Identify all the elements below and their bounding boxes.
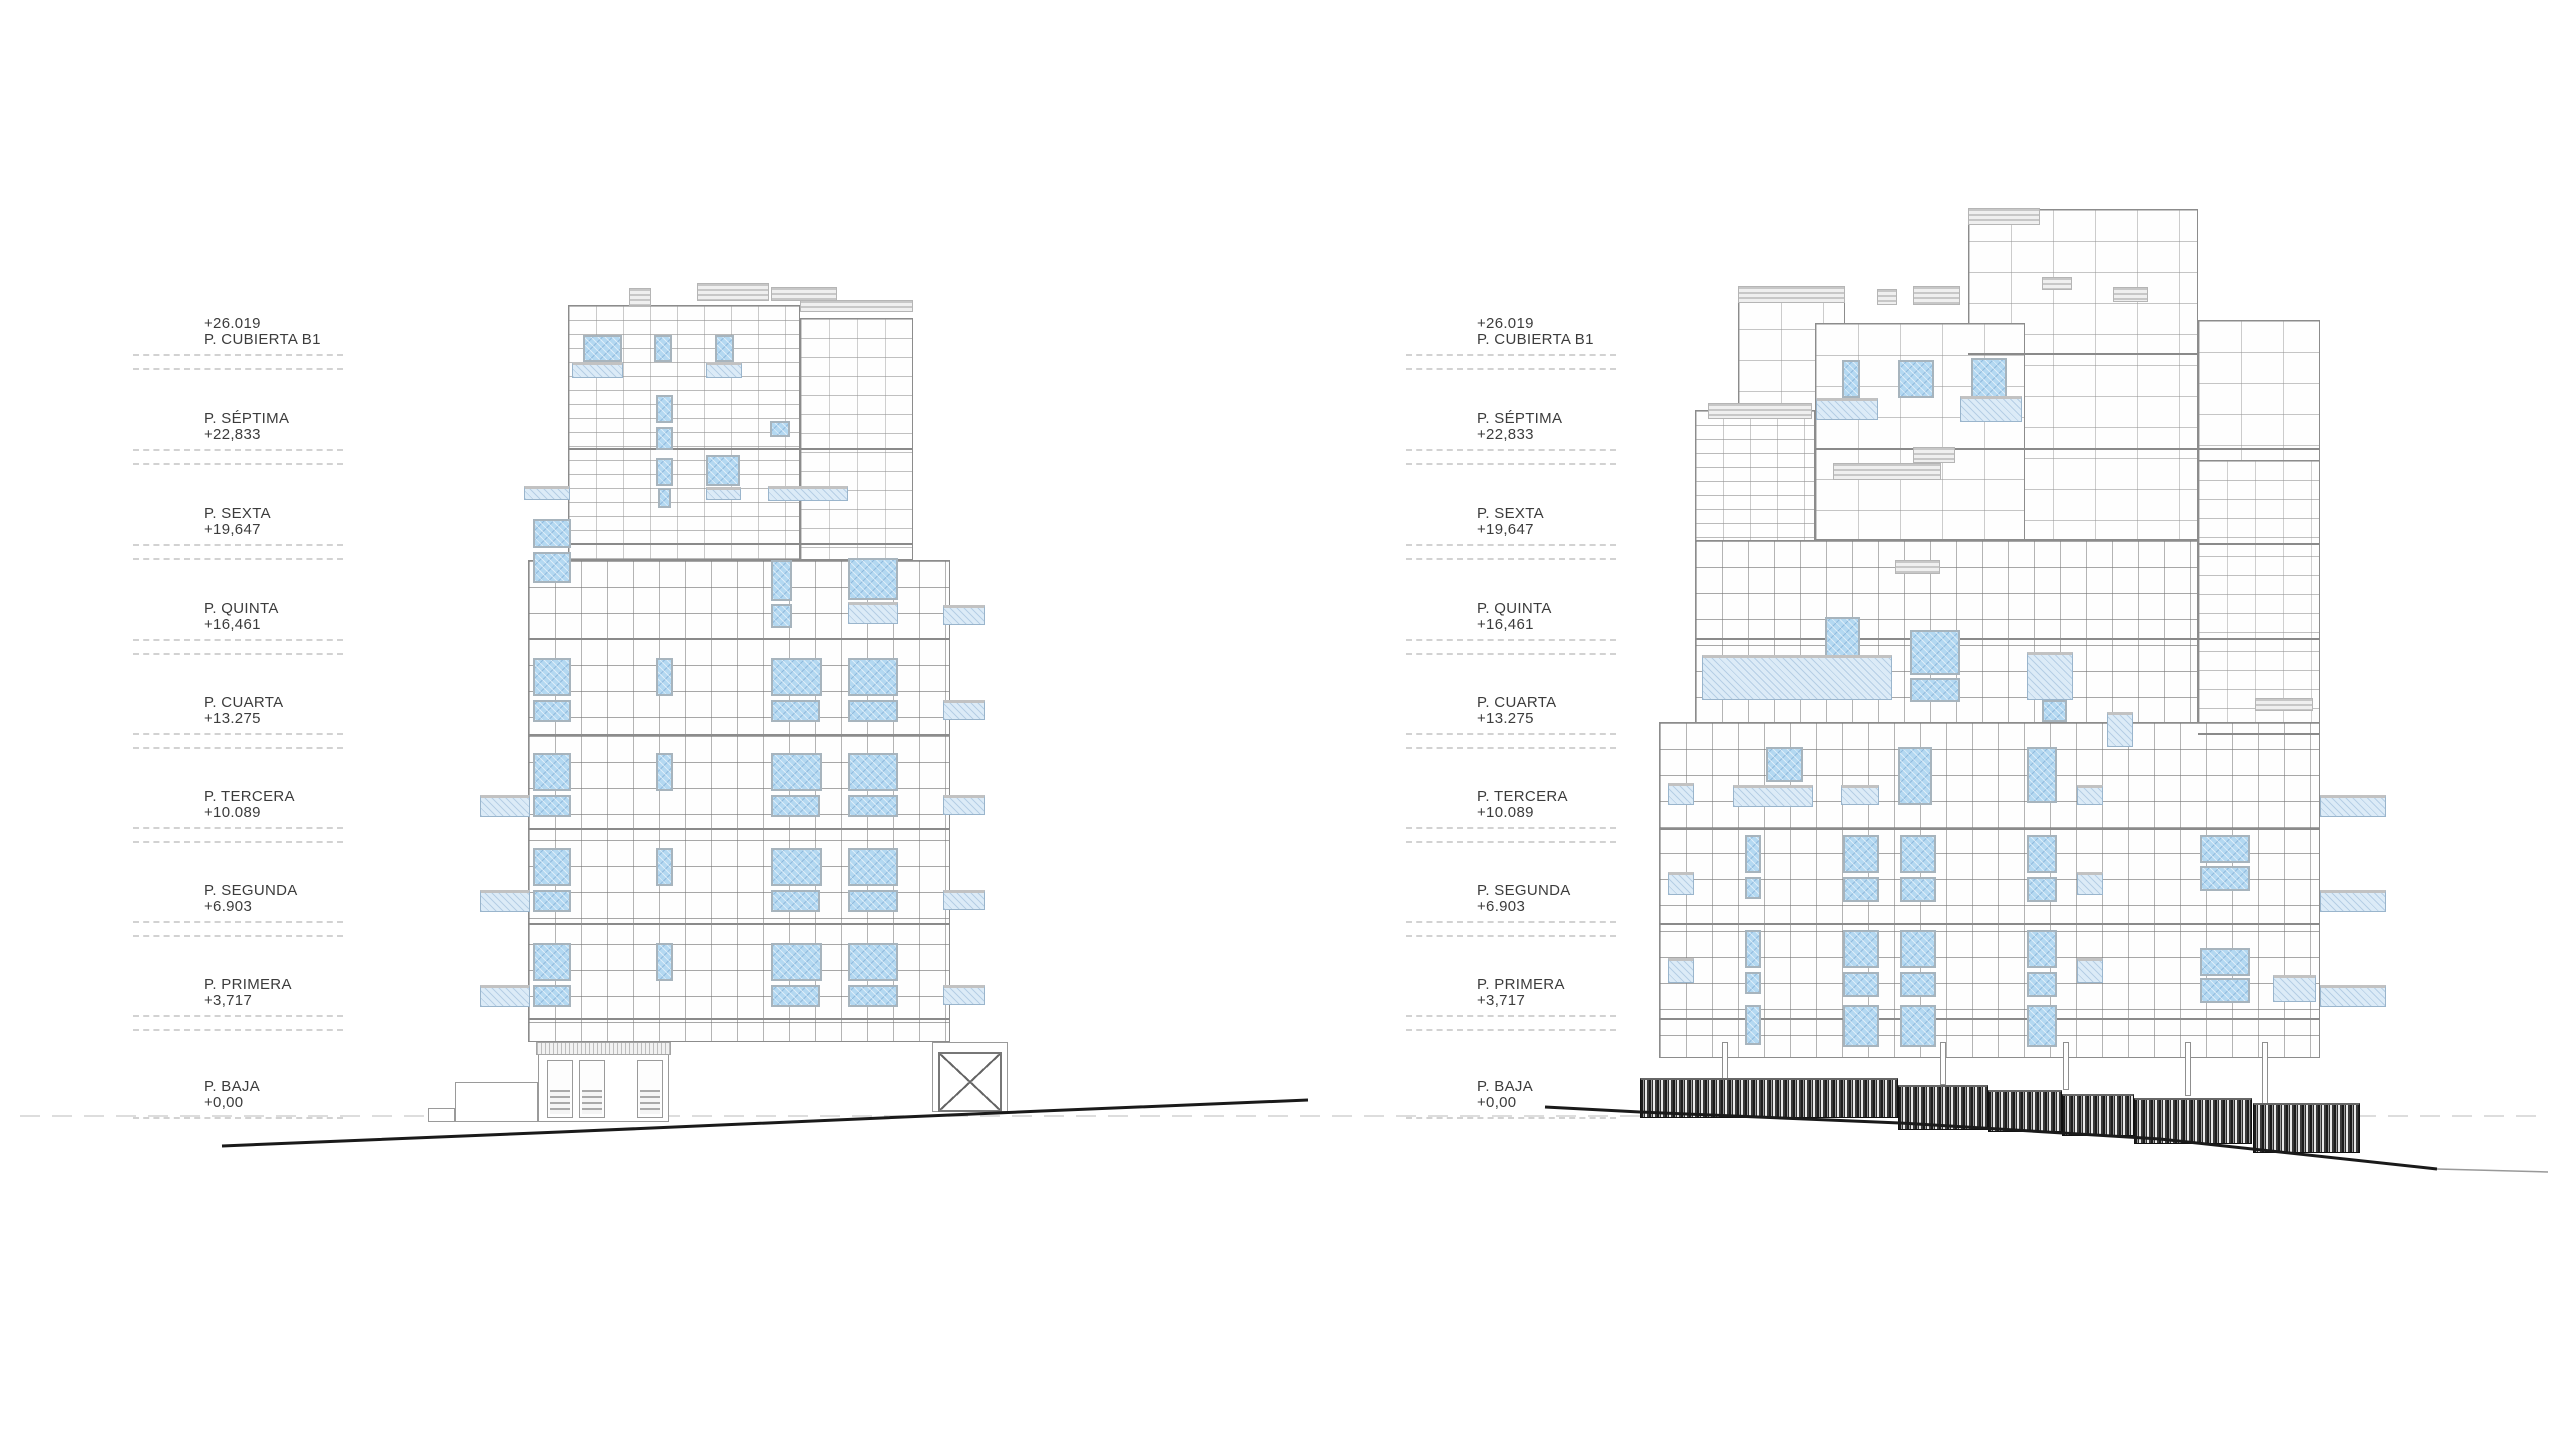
level-dashed-line: [1406, 733, 1616, 735]
floor-label: +26.019P. CUBIERTA B1: [1477, 316, 1594, 348]
level-dashed-line: [1406, 463, 1616, 465]
floor-elevation: +10.089: [1477, 805, 1568, 821]
level-dashed-line: [1406, 558, 1616, 560]
level-dashed-line: [1406, 354, 1616, 356]
floor-name: P. SEGUNDA: [1477, 883, 1571, 899]
level-dashed-line: [1406, 827, 1616, 829]
floor-label: P. SEXTA+19,647: [1477, 506, 1544, 538]
floor-elevation: +26.019: [1477, 316, 1594, 332]
floor-name: P. CUBIERTA B1: [1477, 332, 1594, 348]
floor-name: P. SEXTA: [1477, 506, 1544, 522]
floor-labels-layer: +26.019P. CUBIERTA B1P. SÉPTIMA+22,833P.…: [0, 0, 2560, 1440]
floor-name: P. SÉPTIMA: [1477, 411, 1562, 427]
floor-elevation: +3,717: [1477, 993, 1565, 1009]
level-dashed-line: [1406, 544, 1616, 546]
right-elevation-levels: +26.019P. CUBIERTA B1P. SÉPTIMA+22,833P.…: [0, 0, 2560, 1440]
floor-elevation: +19,647: [1477, 522, 1544, 538]
level-dashed-line: [1406, 1029, 1616, 1031]
level-dashed-line: [1406, 653, 1616, 655]
floor-elevation: +13.275: [1477, 711, 1556, 727]
floor-name: P. BAJA: [1477, 1079, 1533, 1095]
floor-label: P. CUARTA+13.275: [1477, 695, 1556, 727]
level-dashed-line: [1406, 449, 1616, 451]
level-dashed-line: [1406, 1015, 1616, 1017]
level-dashed-line: [1406, 747, 1616, 749]
elevation-sheet: +26.019P. CUBIERTA B1P. SÉPTIMA+22,833P.…: [0, 0, 2560, 1440]
level-dashed-line: [1406, 841, 1616, 843]
floor-label: P. BAJA+0,00: [1477, 1079, 1533, 1111]
floor-elevation: +6.903: [1477, 899, 1571, 915]
floor-label: P. PRIMERA+3,717: [1477, 977, 1565, 1009]
level-dashed-line: [1406, 639, 1616, 641]
floor-name: P. CUARTA: [1477, 695, 1556, 711]
floor-elevation: +16,461: [1477, 617, 1552, 633]
floor-elevation: +22,833: [1477, 427, 1562, 443]
level-dashed-line: [1406, 368, 1616, 370]
floor-name: P. TERCERA: [1477, 789, 1568, 805]
level-dashed-line: [1406, 935, 1616, 937]
floor-label: P. QUINTA+16,461: [1477, 601, 1552, 633]
floor-elevation: +0,00: [1477, 1095, 1533, 1111]
level-dashed-line: [1406, 1117, 1616, 1119]
floor-name: P. PRIMERA: [1477, 977, 1565, 993]
floor-label: P. TERCERA+10.089: [1477, 789, 1568, 821]
floor-label: P. SEGUNDA+6.903: [1477, 883, 1571, 915]
floor-label: P. SÉPTIMA+22,833: [1477, 411, 1562, 443]
floor-name: P. QUINTA: [1477, 601, 1552, 617]
level-dashed-line: [1406, 921, 1616, 923]
